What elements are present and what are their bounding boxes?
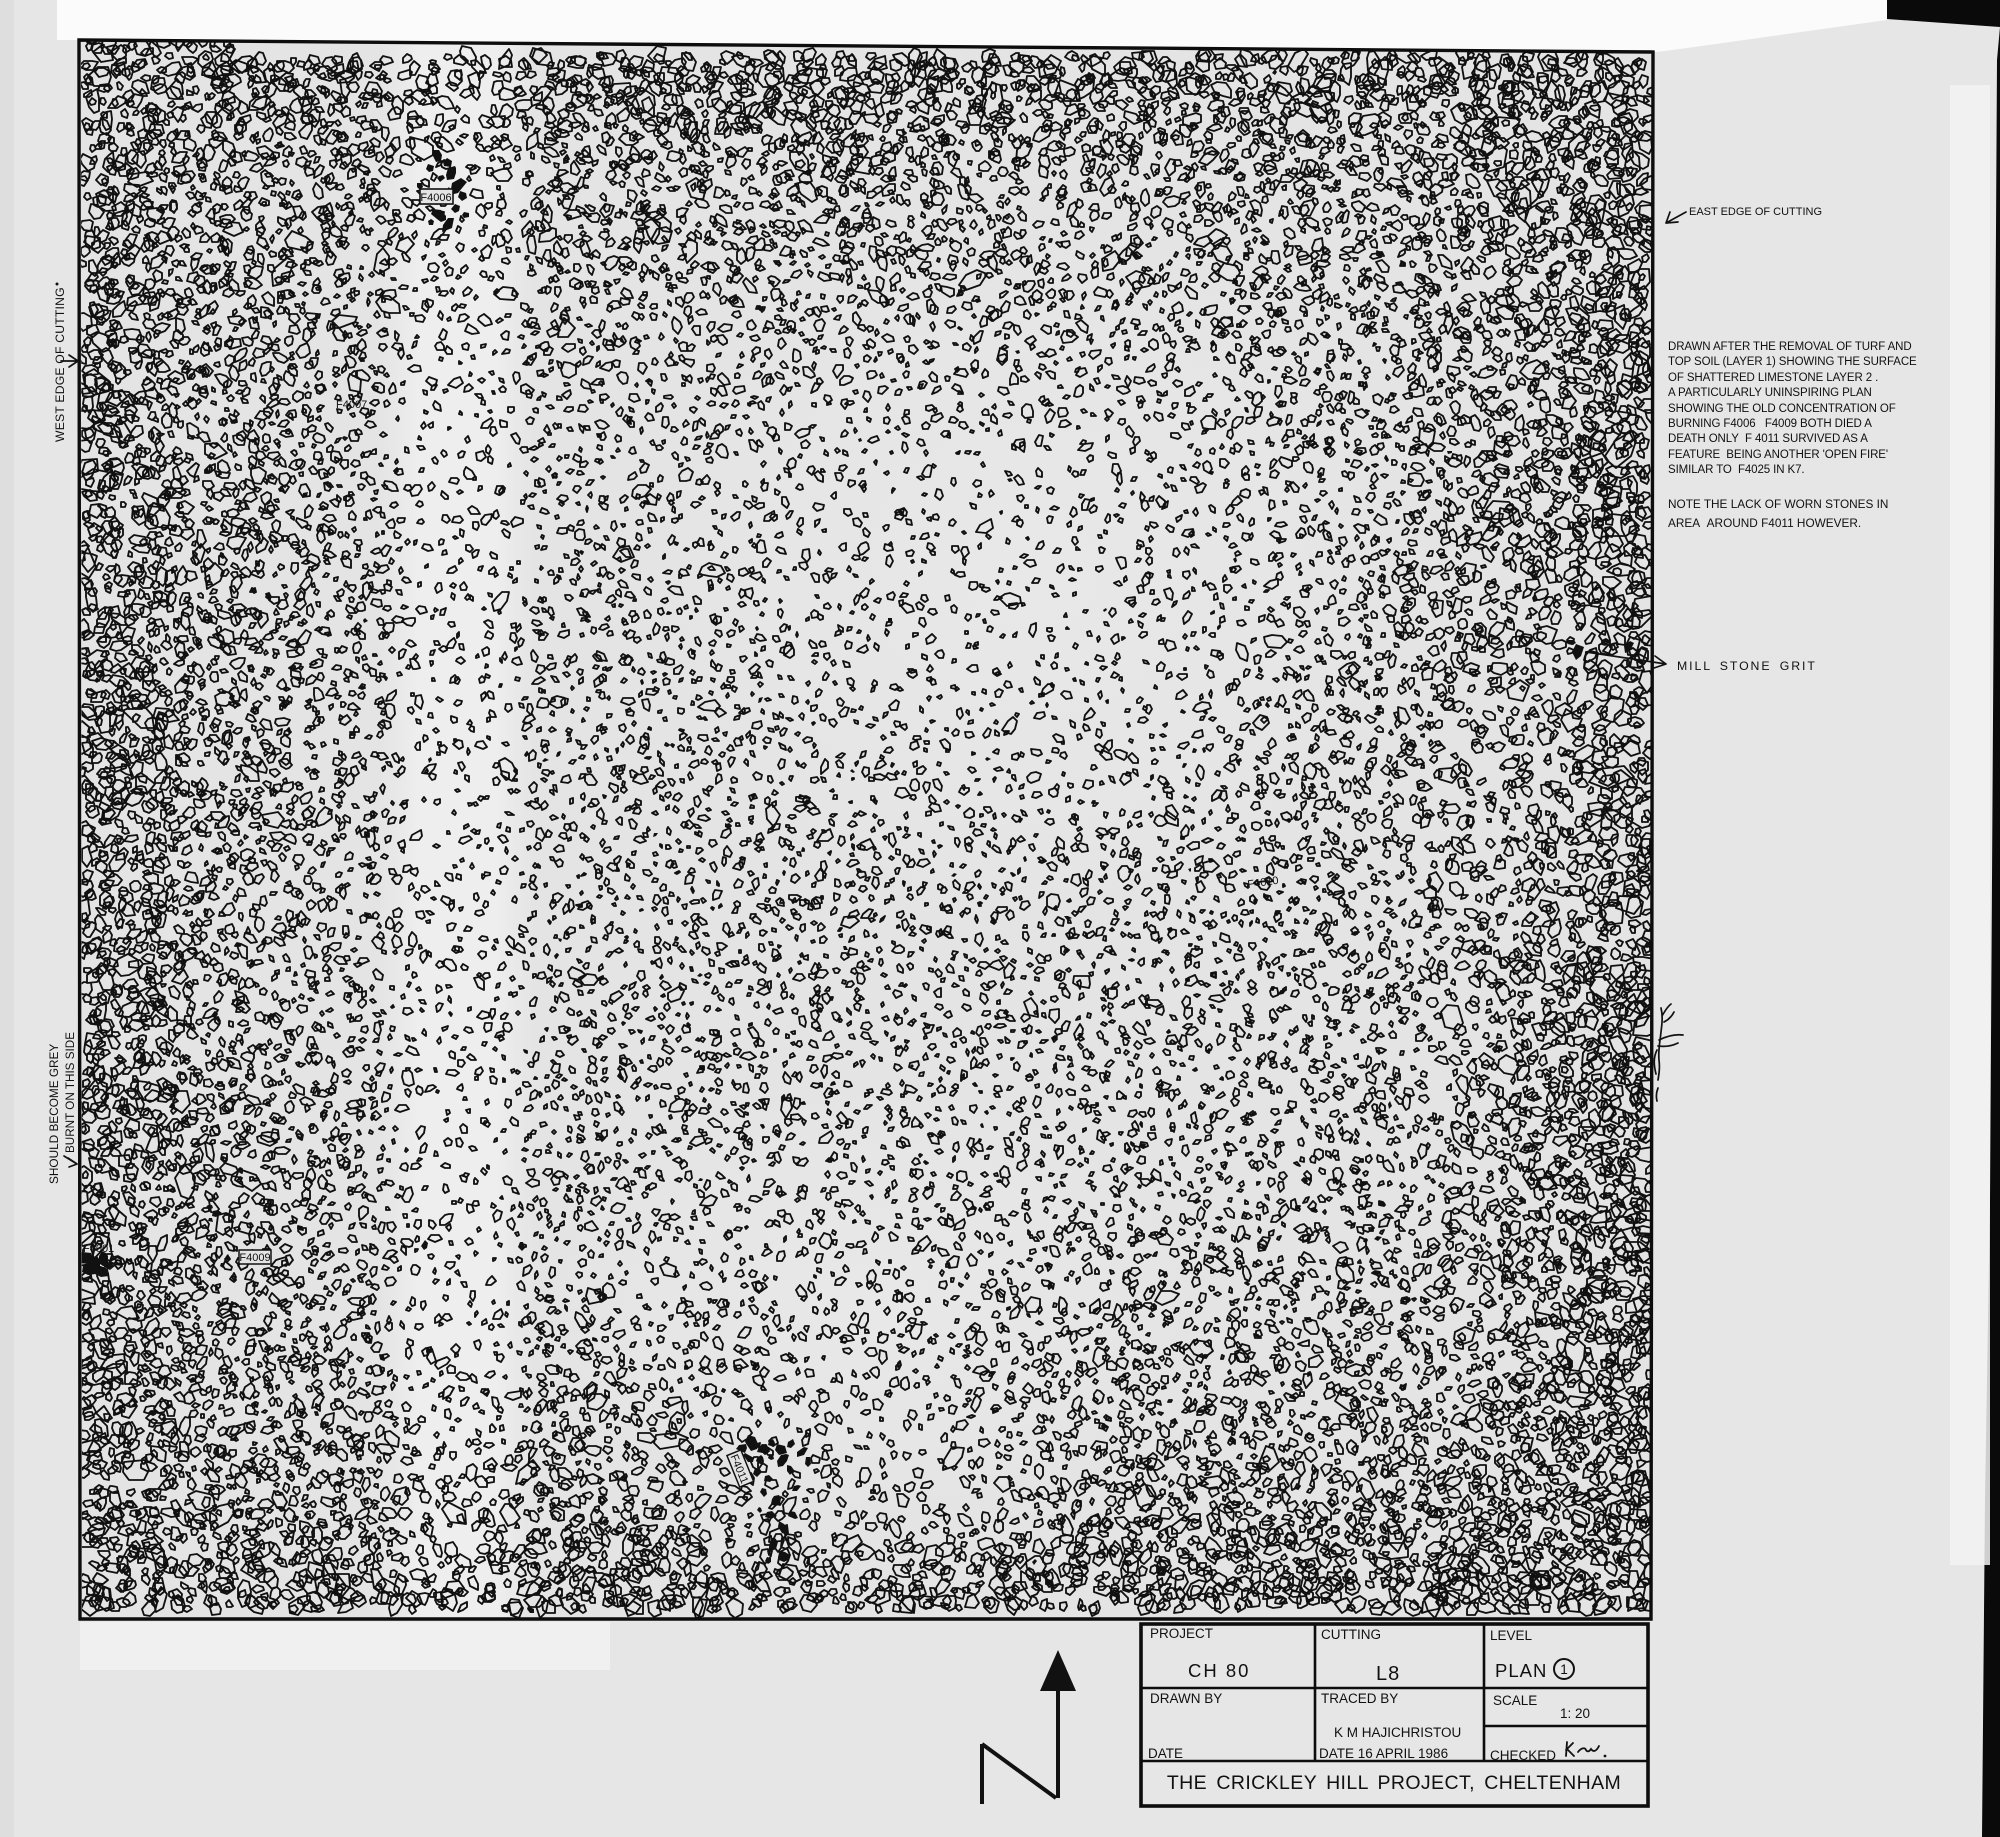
svg-text:EAST EDGE OF CUTTING: EAST EDGE OF CUTTING [1689, 206, 1822, 218]
svg-text:MILL STONE GRIT: MILL STONE GRIT [1677, 659, 1817, 673]
svg-text:WEST EDGE OF CUTTING: WEST EDGE OF CUTTING [53, 287, 67, 442]
svg-text:1: 1 [1560, 1662, 1568, 1677]
svg-text:FEATURE BEING ANOTHER 'OPEN F: FEATURE BEING ANOTHER 'OPEN FIRE' [1668, 449, 1888, 461]
svg-text:SCALE: SCALE [1493, 1693, 1537, 1708]
svg-text:AREA AROUND F4011 HOWEVER.: AREA AROUND F4011 HOWEVER. [1668, 516, 1861, 530]
svg-text:BURNT ON THIS SIDE: BURNT ON THIS SIDE [64, 1032, 77, 1153]
svg-text:A PARTICULARLY UNINSPIRING PLA: A PARTICULARLY UNINSPIRING PLAN [1668, 387, 1872, 399]
svg-text:THE CRICKLEY HILL PROJECT, CHE: THE CRICKLEY HILL PROJECT, CHELTENHAM [1167, 1772, 1621, 1794]
svg-text:PLAN: PLAN [1495, 1660, 1547, 1681]
svg-text:DATE 16 APRIL 1986: DATE 16 APRIL 1986 [1319, 1746, 1448, 1761]
svg-text:CHECKED: CHECKED [1490, 1748, 1556, 1763]
svg-text:DEATH ONLY F 4011 SURVIVED AS: DEATH ONLY F 4011 SURVIVED AS A [1668, 433, 1868, 445]
svg-text:SIMILAR TO F4025 IN K7.: SIMILAR TO F4025 IN K7. [1668, 464, 1805, 476]
svg-text:TOP SOIL (LAYER 1) SHOWING THE: TOP SOIL (LAYER 1) SHOWING THE SURFACE [1668, 356, 1917, 368]
svg-text:F4009: F4009 [239, 1252, 270, 1264]
svg-text:LEVEL: LEVEL [1490, 1628, 1533, 1643]
svg-text:DRAWN AFTER THE REMOVAL OF TUR: DRAWN AFTER THE REMOVAL OF TURF AND [1668, 341, 1912, 353]
svg-text:1: 20: 1: 20 [1560, 1706, 1590, 1721]
svg-text:DRAWN BY: DRAWN BY [1150, 1691, 1222, 1706]
svg-text:CUTTING: CUTTING [1321, 1627, 1381, 1642]
svg-text:CH 80: CH 80 [1188, 1660, 1250, 1681]
svg-text:DATE: DATE [1148, 1746, 1183, 1761]
svg-text:OF SHATTERED LIMESTONE LAYER 2: OF SHATTERED LIMESTONE LAYER 2 . [1668, 372, 1878, 384]
svg-text:SHOULD BECOME GREY: SHOULD BECOME GREY [47, 1044, 61, 1184]
svg-text:F4006: F4006 [420, 192, 451, 204]
svg-text:NOTE THE LACK OF WORN STONES I: NOTE THE LACK OF WORN STONES IN [1668, 497, 1888, 511]
svg-text:L8: L8 [1376, 1663, 1400, 1685]
svg-text:K M HAJICHRISTOU: K M HAJICHRISTOU [1334, 1725, 1461, 1740]
svg-text:F4007: F4007 [336, 399, 367, 411]
svg-text:BURNING F4006 F4009 BOTH DIE: BURNING F4006 F4009 BOTH DIED A [1668, 418, 1872, 430]
svg-text:PROJECT: PROJECT [1150, 1626, 1213, 1641]
svg-text:TRACED BY: TRACED BY [1321, 1691, 1398, 1706]
svg-text:SHOWING THE OLD CONCENTRATION: SHOWING THE OLD CONCENTRATION OF [1668, 403, 1896, 415]
svg-text:F4001: F4001 [83, 1243, 114, 1255]
